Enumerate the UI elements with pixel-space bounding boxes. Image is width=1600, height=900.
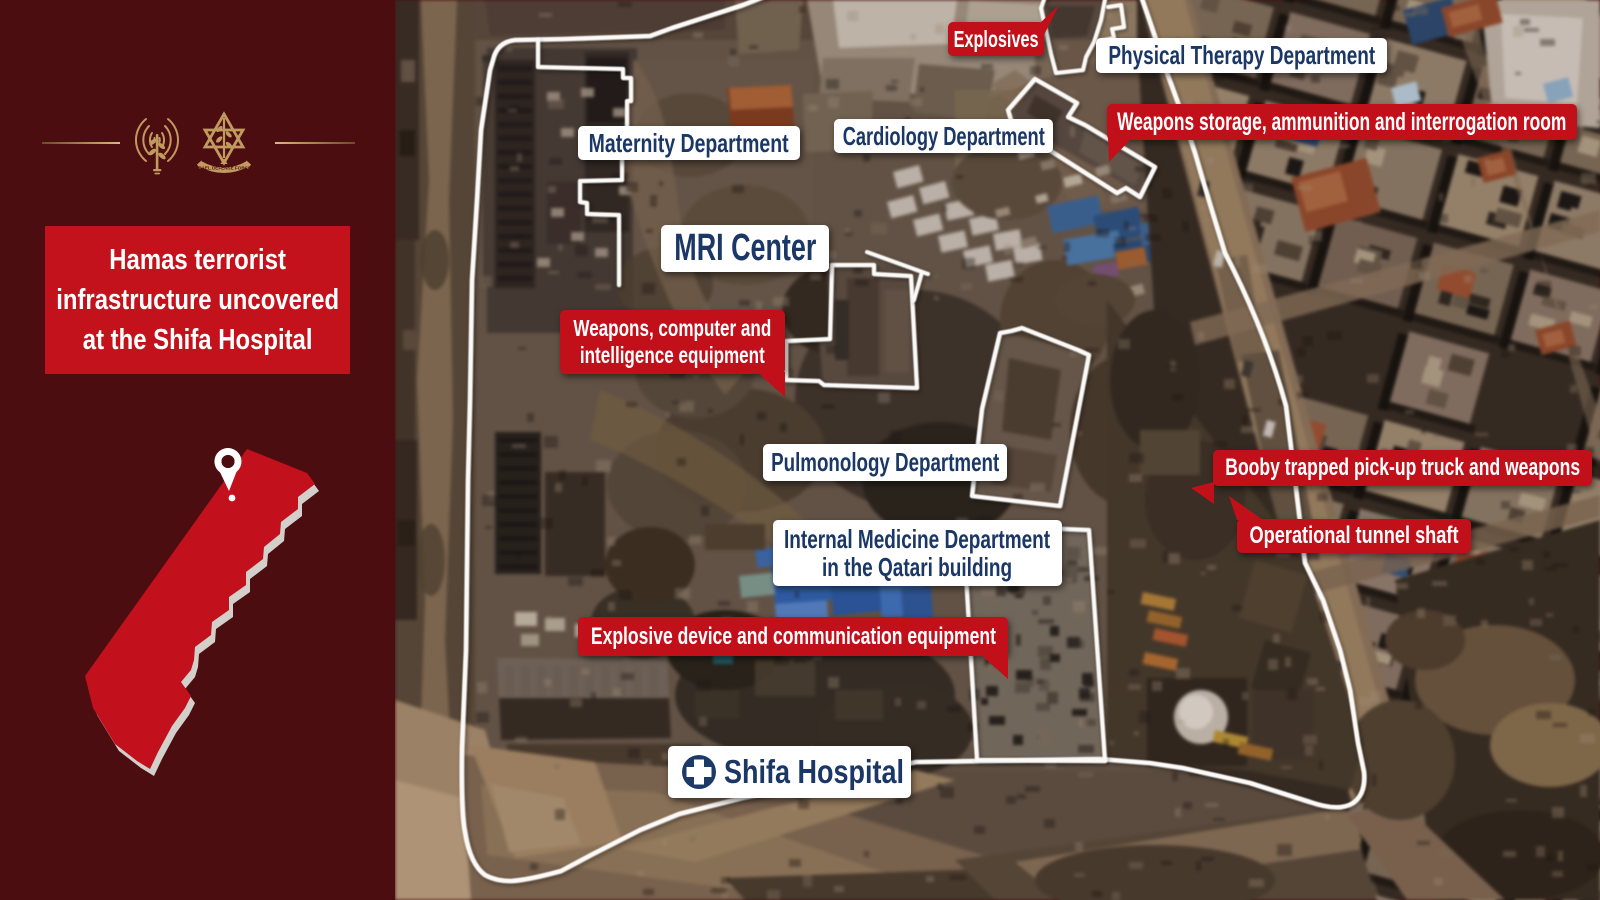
svg-text:ISRAEL DEFENSE FORCES: ISRAEL DEFENSE FORCES: [194, 166, 254, 171]
